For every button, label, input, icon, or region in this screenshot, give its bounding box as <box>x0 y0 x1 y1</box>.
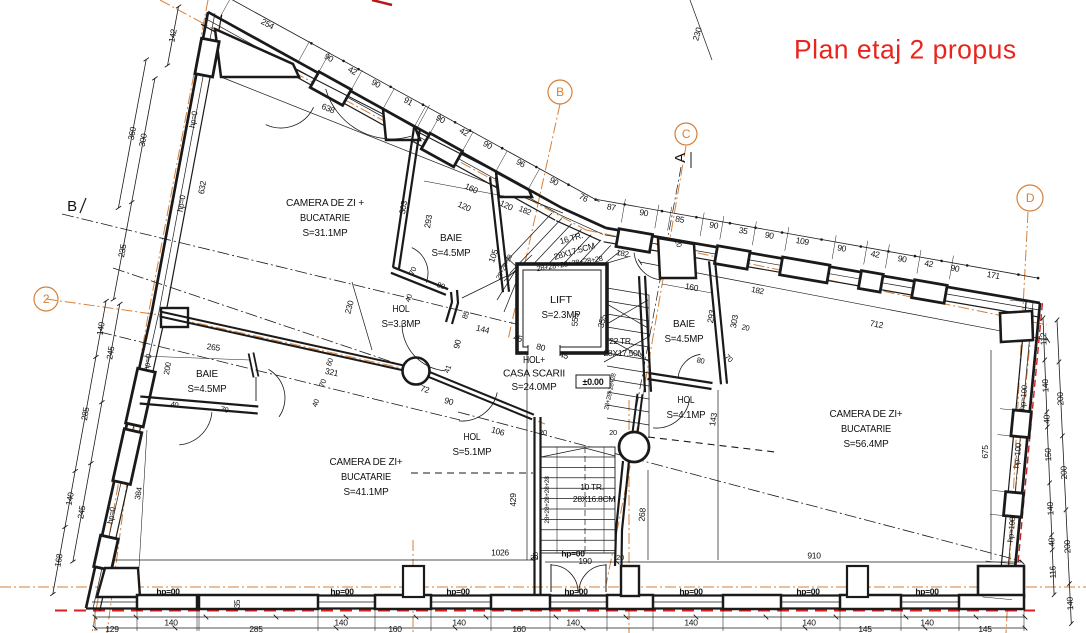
svg-text:140: 140 <box>164 618 178 628</box>
svg-text:S=4.5MP: S=4.5MP <box>665 333 704 345</box>
svg-text:28X17.50M: 28X17.50M <box>604 348 645 358</box>
svg-text:HOL+: HOL+ <box>523 354 545 366</box>
svg-text:20: 20 <box>530 553 538 562</box>
svg-text:S=24.0MP: S=24.0MP <box>512 381 557 393</box>
svg-text:hp=00: hp=00 <box>561 549 585 559</box>
svg-text:140: 140 <box>452 618 466 628</box>
svg-text:910: 910 <box>807 551 821 561</box>
svg-text:hp=00: hp=00 <box>679 587 703 597</box>
svg-text:A: A <box>672 153 689 163</box>
svg-text:BUCATARIE: BUCATARIE <box>341 471 391 483</box>
svg-text:28X16.8CM: 28X16.8CM <box>573 494 615 504</box>
svg-text:2: 2 <box>43 292 50 306</box>
svg-text:S=56.4MP: S=56.4MP <box>844 438 889 450</box>
svg-text:C: C <box>682 127 691 141</box>
svg-text:S=3.3MP: S=3.3MP <box>382 318 421 330</box>
svg-text:40: 40 <box>1046 537 1056 547</box>
svg-text:±0.00: ±0.00 <box>583 377 604 387</box>
svg-text:150: 150 <box>1043 448 1054 462</box>
svg-text:140: 140 <box>802 618 816 628</box>
svg-text:hp=00: hp=00 <box>796 587 820 597</box>
svg-text:200: 200 <box>1062 539 1073 553</box>
svg-text:BAIE: BAIE <box>196 368 218 380</box>
svg-text:BAIE: BAIE <box>440 232 462 244</box>
svg-text:CAMERA DE ZI +: CAMERA DE ZI + <box>286 197 364 209</box>
svg-text:hp=00: hp=00 <box>156 587 180 597</box>
svg-text:hp=00: hp=00 <box>330 587 354 597</box>
svg-text:D: D <box>1026 191 1035 205</box>
svg-text:HOL: HOL <box>393 303 410 315</box>
svg-text:140: 140 <box>1040 379 1051 393</box>
svg-text:22 TR.: 22 TR. <box>609 336 633 346</box>
svg-text:140: 140 <box>684 618 698 628</box>
svg-text:112: 112 <box>1038 332 1049 345</box>
svg-text:B: B <box>67 198 77 215</box>
svg-text:140: 140 <box>1065 596 1076 610</box>
svg-text:145: 145 <box>978 624 992 633</box>
svg-text:CAMERA DE ZI+: CAMERA DE ZI+ <box>330 456 403 468</box>
svg-text:116: 116 <box>1047 565 1058 578</box>
svg-text:160: 160 <box>512 624 526 633</box>
svg-text:145: 145 <box>858 624 872 633</box>
svg-text:S=31.1MP: S=31.1MP <box>303 227 348 239</box>
svg-text:20: 20 <box>539 428 547 437</box>
svg-text:129: 129 <box>105 624 119 633</box>
svg-text:160: 160 <box>388 624 402 633</box>
svg-text:28+28+28+28+28: 28+28+28+28+28 <box>544 476 551 524</box>
svg-text:B: B <box>556 85 564 99</box>
svg-text:HOL: HOL <box>464 431 481 443</box>
svg-text:S=41.1MP: S=41.1MP <box>344 486 389 498</box>
svg-text:675: 675 <box>980 445 990 459</box>
svg-text:140: 140 <box>1045 501 1056 515</box>
svg-text:265: 265 <box>206 341 221 353</box>
svg-text:hp=00: hp=00 <box>564 587 588 597</box>
svg-text:S=4.5MP: S=4.5MP <box>188 383 227 395</box>
svg-text:BUCATARIE: BUCATARIE <box>300 212 350 224</box>
svg-text:140: 140 <box>566 618 580 628</box>
svg-text:10 TR.: 10 TR. <box>580 482 604 492</box>
svg-text:Plan etaj 2 propus: Plan etaj 2 propus <box>794 35 1017 65</box>
svg-text:CAMERA DE ZI+: CAMERA DE ZI+ <box>830 408 903 420</box>
svg-text:200: 200 <box>1055 392 1066 406</box>
svg-text:20: 20 <box>616 553 624 562</box>
svg-text:BUCATARIE: BUCATARIE <box>841 423 891 435</box>
svg-text:35: 35 <box>233 599 242 608</box>
svg-text:268: 268 <box>636 507 647 522</box>
svg-text:140: 140 <box>334 618 348 628</box>
svg-text:285: 285 <box>249 624 263 633</box>
svg-text:S=2.3MP: S=2.3MP <box>542 309 581 321</box>
svg-text:HOL: HOL <box>678 394 695 406</box>
svg-text:CASA SCARII: CASA SCARII <box>503 368 565 380</box>
svg-text:40: 40 <box>1041 414 1051 424</box>
svg-text:S=4.1MP: S=4.1MP <box>667 409 706 421</box>
svg-text:20: 20 <box>609 428 617 437</box>
svg-text:429: 429 <box>508 493 518 507</box>
svg-text:200: 200 <box>1058 465 1069 479</box>
svg-text:S=5.1MP: S=5.1MP <box>453 446 492 458</box>
svg-text:S=4.5MP: S=4.5MP <box>432 247 471 259</box>
svg-text:BAIE: BAIE <box>673 318 695 330</box>
svg-text:hp=00: hp=00 <box>446 587 470 597</box>
svg-text:hp=00: hp=00 <box>915 587 939 597</box>
svg-text:LIFT: LIFT <box>550 294 573 306</box>
svg-text:1026: 1026 <box>491 548 509 558</box>
